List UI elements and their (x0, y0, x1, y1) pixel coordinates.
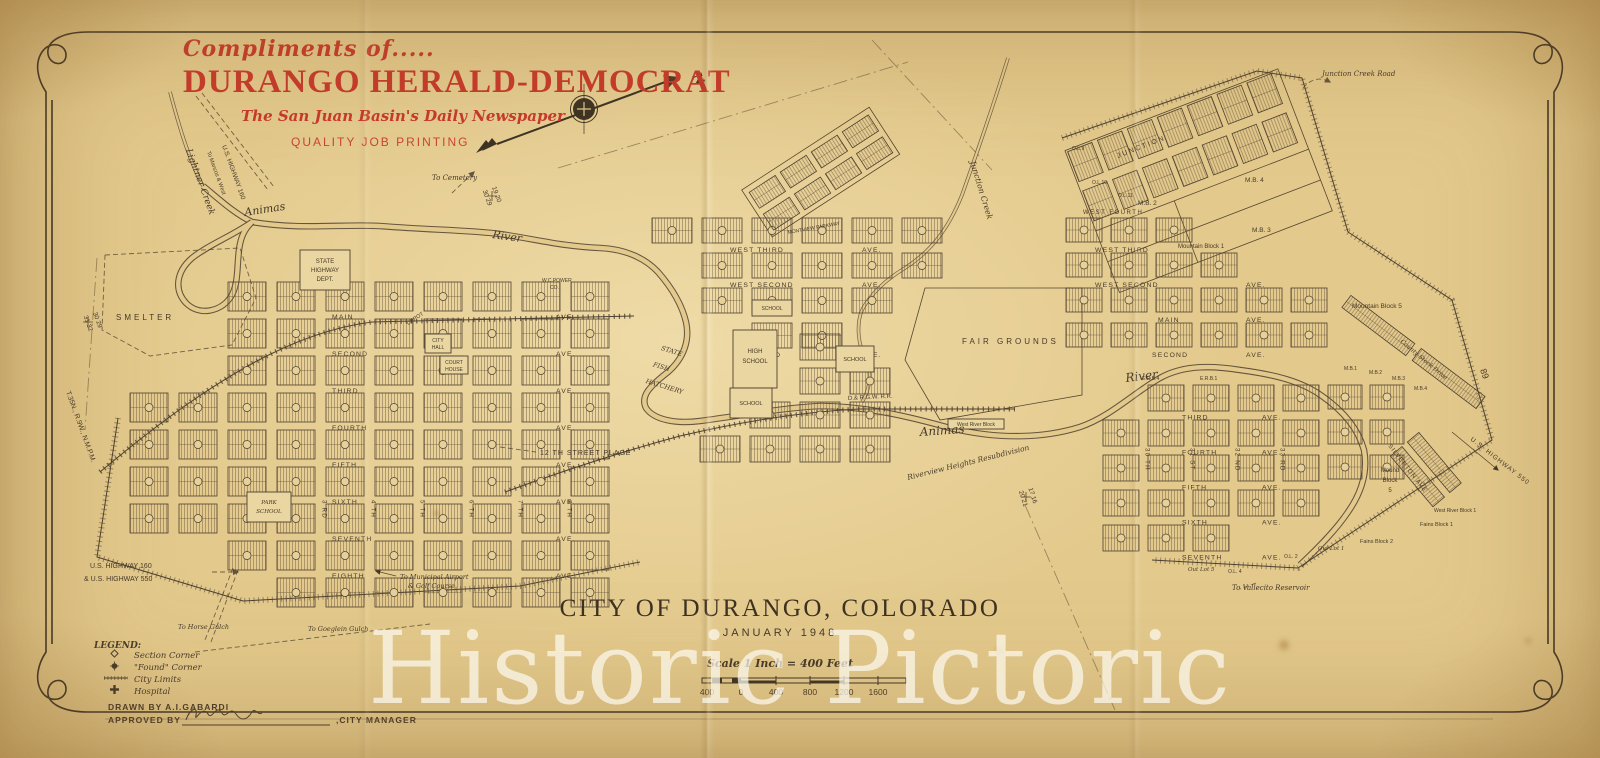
place-label: HOUSE (445, 367, 463, 373)
block-number-badge (341, 330, 349, 338)
street-label: 32 ND (1234, 448, 1241, 472)
block-number-badge (1297, 464, 1305, 472)
place-label: CITY (432, 338, 444, 344)
block-number-badge (586, 330, 594, 338)
block-number-badge (390, 404, 398, 412)
block-number-badge (1252, 464, 1260, 472)
block-number-badge (537, 478, 545, 486)
street-label: 8 TH (566, 500, 573, 518)
block-number-badge (537, 330, 545, 338)
block-number-badge (390, 478, 398, 486)
scale-text: Scale 1 Inch = 400 Feet (707, 657, 853, 670)
street-label: WEST FOURTH (1083, 210, 1143, 216)
place-label: STATE (316, 259, 334, 265)
block-label: E.R.B.1 (1200, 376, 1217, 382)
block-label: M.B.4 (1414, 386, 1427, 392)
legend-label: Section Corner (134, 651, 200, 661)
block-number-badge (816, 445, 824, 453)
credits: DRAWN BY A.I.GABARDI APPROVED BY ,CITY M… (108, 702, 417, 725)
block-number-badge (439, 441, 447, 449)
block-number-badge (768, 262, 776, 270)
block-number-badge (868, 297, 876, 305)
block-number-badge (1260, 296, 1268, 304)
block-number-badge (292, 293, 300, 301)
block-number-badge (586, 441, 594, 449)
block-number-badge (390, 293, 398, 301)
street-label: SEVENTH (1182, 554, 1223, 561)
road-label: U.S. HIGHWAY 160 (90, 563, 152, 570)
block-number-badge (488, 330, 496, 338)
block-number-badge (1162, 394, 1170, 402)
street-label: 12 TH STREET PLACE (540, 450, 631, 457)
fair-grounds-area (905, 288, 1082, 420)
block-number-badge (390, 552, 398, 560)
block-number-badge (341, 478, 349, 486)
street-label: 6 TH (468, 500, 475, 518)
block-number-badge (1207, 499, 1215, 507)
block-number-badge (1341, 463, 1349, 471)
block-number-badge (1383, 393, 1391, 401)
block-number-badge (718, 262, 726, 270)
block-number-badge (488, 552, 496, 560)
block-number-badge (194, 478, 202, 486)
block-number-badge (1170, 296, 1178, 304)
svg-text:STATE: STATE (660, 344, 683, 358)
river-label: Animas (242, 200, 286, 219)
block-number-badge (341, 589, 349, 597)
grid-junction (1068, 74, 1298, 221)
block-label: 5 (1388, 488, 1392, 494)
block-label: M.B. 3 (1252, 227, 1271, 234)
block-number-badge (1162, 464, 1170, 472)
block-number-badge (1162, 429, 1170, 437)
block-number-badge (292, 441, 300, 449)
block-label: O.L.10 (1092, 180, 1107, 186)
road-label: Junction Creek Road (1320, 70, 1396, 78)
block-number-badge (1297, 394, 1305, 402)
street-label: 31 ST (1189, 448, 1196, 471)
block-number-badge (1080, 331, 1088, 339)
block-number-badge (1297, 429, 1305, 437)
block-label: Out Lot 1 (1318, 546, 1344, 552)
road-label: To Municipal Airport (400, 573, 469, 581)
block-number-badge (1215, 296, 1223, 304)
place-label: HALL (432, 345, 445, 351)
road-label: & U.S. HIGHWAY 550 (84, 576, 152, 583)
block-number-badge (1341, 393, 1349, 401)
block-number-badge (390, 367, 398, 375)
park-school-block (247, 492, 291, 522)
block-number-badge (1170, 331, 1178, 339)
block-label: M.B. 2 (1138, 200, 1157, 207)
block-number-badge (1383, 428, 1391, 436)
block-number-badge (341, 552, 349, 560)
scale-tick: 1600 (869, 687, 888, 697)
block-label: M.B.2 (1369, 370, 1382, 376)
block-number-badge (243, 478, 251, 486)
block-number-badge (1207, 464, 1215, 472)
grid-northeast: WEST THIRDWEST SECONDAVE.MAINAVE.SECONDA… (1066, 218, 1327, 359)
block-number-badge (292, 330, 300, 338)
newspaper-name: DURANGO HERALD-DEMOCRAT (183, 64, 731, 101)
block-number-badge (586, 515, 594, 523)
block-number-badge (292, 478, 300, 486)
block-label: Mountain Block 1 (1178, 244, 1225, 250)
block-number-badge (243, 552, 251, 560)
block-number-badge (1080, 261, 1088, 269)
section-corner-icon (111, 650, 118, 657)
block-number-badge (292, 404, 300, 412)
block-number-badge (1162, 534, 1170, 542)
section-number: 89 (1478, 367, 1491, 380)
place-label: SCHOOL (761, 306, 782, 312)
block-number-badge (537, 367, 545, 375)
street-label: AVE. (1262, 519, 1282, 526)
block-number-badge (390, 441, 398, 449)
block-number-badge (1162, 499, 1170, 507)
road-label: County Stock Drive (1399, 338, 1449, 382)
block-number-badge (439, 404, 447, 412)
block-number-badge (816, 343, 824, 351)
block-number-badge (439, 293, 447, 301)
corner-flourish (1512, 648, 1562, 712)
block-number-badge (194, 515, 202, 523)
block-number-badge (1215, 331, 1223, 339)
block-number-badge (1117, 429, 1125, 437)
block-number-badge (145, 478, 153, 486)
block-number-badge (194, 441, 202, 449)
block-number-badge (390, 330, 398, 338)
legend-heading: LEGEND: (93, 641, 141, 651)
place-label: SCHOOL (739, 401, 762, 407)
block-number-badge (341, 293, 349, 301)
scale-bar: 400 0 400 800 1200 1600 (700, 676, 906, 697)
place-label: SCHOOL (742, 359, 768, 365)
block-number-badge (1215, 261, 1223, 269)
block-label: E.R.B.4 (1142, 376, 1159, 382)
block-number-badge (390, 515, 398, 523)
block-number-badge (488, 293, 496, 301)
block-label: Fains Block 2 (1360, 539, 1393, 545)
block-number-badge (1117, 464, 1125, 472)
newspaper-masthead: Compliments of..... DURANGO HERALD-DEMOC… (183, 36, 731, 149)
block-label: O.L.9 (1072, 146, 1084, 152)
block-number-badge (586, 404, 594, 412)
block-number-badge (1080, 226, 1088, 234)
block-number-badge (586, 552, 594, 560)
block-number-badge (1170, 226, 1178, 234)
block-number-badge (341, 367, 349, 375)
block-number-badge (145, 441, 153, 449)
block-number-badge (1252, 429, 1260, 437)
block-label: O.L. 2 (1284, 554, 1298, 560)
place-label: CO. (550, 285, 559, 291)
scale-tick: 400 (769, 687, 783, 697)
block-label: O.L. 4 (1228, 569, 1242, 575)
title-block: CITY OF DURANGO, COLORADO JANUARY 1948 S… (560, 595, 1001, 697)
block-number-badge (488, 404, 496, 412)
block-label: West River Block 1 (1434, 508, 1476, 514)
block-label: Mountain Block 5 (1352, 303, 1402, 310)
map-date: JANUARY 1948 (723, 627, 837, 639)
block-number-badge (1305, 296, 1313, 304)
place-label: DEPOT (406, 311, 426, 327)
svg-text:30 29: 30 29 (481, 189, 493, 207)
scale-tick: 400 (700, 687, 714, 697)
block-number-badge (145, 515, 153, 523)
block-label: M.B.1 (1344, 366, 1357, 372)
block-number-badge (1125, 226, 1133, 234)
place-label: SCHOOL (843, 357, 866, 363)
block-label: Out Lot 5 (1188, 567, 1215, 573)
place-label: DEPT. (316, 277, 333, 283)
street-label: 4 TH (370, 500, 377, 518)
block-number-badge (816, 377, 824, 385)
block-number-badge (292, 589, 300, 597)
creek-label: Junction Creek (968, 158, 995, 221)
svg-text:20 21: 20 21 (1017, 490, 1029, 508)
block-number-badge (243, 404, 251, 412)
legend: LEGEND: Section Corner "Found" Corner Ci… (93, 641, 203, 697)
block-label: M.B.3 (1392, 376, 1405, 382)
block-number-badge (668, 227, 676, 235)
legend-label: Hospital (133, 687, 171, 697)
block-number-badge (292, 367, 300, 375)
block-number-badge (716, 445, 724, 453)
block-number-badge (1125, 296, 1133, 304)
block-number-badge (1117, 534, 1125, 542)
block-number-badge (243, 367, 251, 375)
block-number-badge (766, 445, 774, 453)
block-label: West River Block (957, 422, 995, 428)
block-label: O.L.11 (1118, 193, 1133, 199)
block-number-badge (537, 552, 545, 560)
corner-flourish (38, 32, 88, 96)
block-number-badge (292, 552, 300, 560)
scale-tick: 1200 (835, 687, 854, 697)
map-title: CITY OF DURANGO, COLORADO (560, 595, 1001, 622)
scale-tick: 800 (803, 687, 817, 697)
street-label: 33 RD (1279, 448, 1286, 472)
block-number-badge (1305, 331, 1313, 339)
block-number-badge (1207, 534, 1215, 542)
block-number-badge (586, 293, 594, 301)
block-number-badge (292, 515, 300, 523)
place-label: W.C.POWER (542, 278, 572, 284)
block-number-badge (1260, 331, 1268, 339)
legend-label: City Limits (134, 675, 182, 685)
block-number-badge (145, 404, 153, 412)
block-number-badge (1252, 394, 1260, 402)
area-label: FAIR GROUNDS (962, 337, 1059, 346)
block-number-badge (341, 441, 349, 449)
block-number-badge (1170, 261, 1178, 269)
newspaper-tagline: The San Juan Basin's Daily Newspaper (241, 107, 731, 125)
block-number-badge (439, 552, 447, 560)
block-number-badge (488, 478, 496, 486)
block-number-badge (586, 367, 594, 375)
street-label: AVE. (1246, 352, 1266, 359)
block-number-badge (1207, 429, 1215, 437)
corner-flourish (1512, 32, 1562, 96)
block-number-badge (866, 445, 874, 453)
place-label: HIGHWAY (311, 268, 339, 274)
block-number-badge (718, 227, 726, 235)
block-number-badge (866, 377, 874, 385)
block-number-badge (818, 262, 826, 270)
road-label: To Goeglein Gulch (308, 625, 368, 633)
block-number-badge (341, 515, 349, 523)
block-label: Mound (1381, 468, 1399, 474)
road-label: U.S. HIGHWAY 550 (1469, 436, 1531, 487)
block-number-badge (537, 404, 545, 412)
city-manager: ,CITY MANAGER (336, 715, 417, 725)
hospital-icon (110, 685, 119, 694)
block-number-badge (243, 293, 251, 301)
map-sheet: MAINAVE.SECONDAVE.THIRDAVE.FOURTHAVE.FIF… (0, 0, 1600, 758)
found-corner-icon (110, 662, 119, 671)
railroad-label: D.& R.G.W. R.R. (848, 394, 893, 402)
block-number-badge (537, 589, 545, 597)
block-label: Block (1383, 478, 1399, 484)
block-number-badge (868, 262, 876, 270)
block-number-badge (243, 441, 251, 449)
block-number-badge (718, 297, 726, 305)
river-label: River (491, 228, 524, 245)
grid-central: WEST THIRDAVE.WEST SECONDAVE.SECONDAVE. (652, 218, 942, 359)
svg-text:FISH: FISH (651, 360, 671, 373)
road-label: To Cemetery (432, 174, 478, 182)
block-number-badge (194, 404, 202, 412)
block-label: Fains Block 1 (1420, 522, 1453, 528)
block-number-badge (816, 411, 824, 419)
approved-by: APPROVED BY (108, 715, 181, 725)
block-number-badge (1080, 296, 1088, 304)
block-number-badge (1207, 394, 1215, 402)
grid-west: MAINAVE.SECONDAVE.THIRDAVE.FOURTHAVE.FIF… (228, 282, 609, 607)
block-number-badge (243, 330, 251, 338)
compliments-line: Compliments of..... (183, 36, 731, 62)
block-number-badge (439, 478, 447, 486)
block-number-badge (1125, 261, 1133, 269)
block-number-badge (866, 411, 874, 419)
scale-tick: 0 (739, 687, 744, 697)
block-number-badge (341, 404, 349, 412)
block-number-badge (537, 441, 545, 449)
block-number-badge (488, 367, 496, 375)
block-number-badge (390, 589, 398, 597)
block-number-badge (537, 515, 545, 523)
place-label: PARK (260, 500, 277, 506)
block-number-badge (1117, 499, 1125, 507)
street-label: 7 TH (517, 500, 524, 518)
block-number-badge (1297, 499, 1305, 507)
street-label: SECOND (1152, 352, 1188, 359)
block-number-badge (868, 227, 876, 235)
block-number-badge (1125, 331, 1133, 339)
street-label: AVE. (1262, 554, 1282, 561)
block-number-badge (439, 515, 447, 523)
block-number-badge (818, 297, 826, 305)
area-label: Riverview Heights Resubdivision (905, 443, 1030, 482)
block-number-badge (1252, 499, 1260, 507)
grid-east: THIRDAVE.FOURTHAVE.FIFTHAVE.SIXTHAVE.SEV… (1103, 385, 1319, 561)
block-number-badge (918, 227, 926, 235)
township-label: T.35N., R.9W., N.M.P.M. (64, 390, 96, 463)
corner-flourish (38, 648, 88, 712)
block-number-badge (537, 293, 545, 301)
area-label: SMELTER (116, 313, 174, 322)
block-number-badge (488, 589, 496, 597)
block-number-badge (488, 441, 496, 449)
street-label: 30 TH (1144, 448, 1151, 471)
block-number-badge (918, 262, 926, 270)
block-number-badge (488, 515, 496, 523)
block-label: M.B. 4 (1245, 177, 1264, 184)
place-label: COURT (445, 360, 463, 366)
legend-label: "Found" Corner (134, 663, 203, 673)
street-label: 5 TH (419, 500, 426, 518)
block-number-badge (1341, 428, 1349, 436)
block-number-badge (586, 478, 594, 486)
place-label: HIGH (748, 349, 763, 355)
place-label: SCHOOL (256, 509, 282, 515)
road-label: To Horse Gulch (178, 623, 229, 631)
printing-line: QUALITY JOB PRINTING (291, 135, 731, 149)
road-label: To Vallecito Reservoir (1232, 584, 1310, 592)
street-label: 3 RD (321, 500, 328, 519)
road-label: & Golf Course (408, 582, 455, 590)
drawn-by: DRAWN BY A.I.GABARDI (108, 702, 229, 712)
